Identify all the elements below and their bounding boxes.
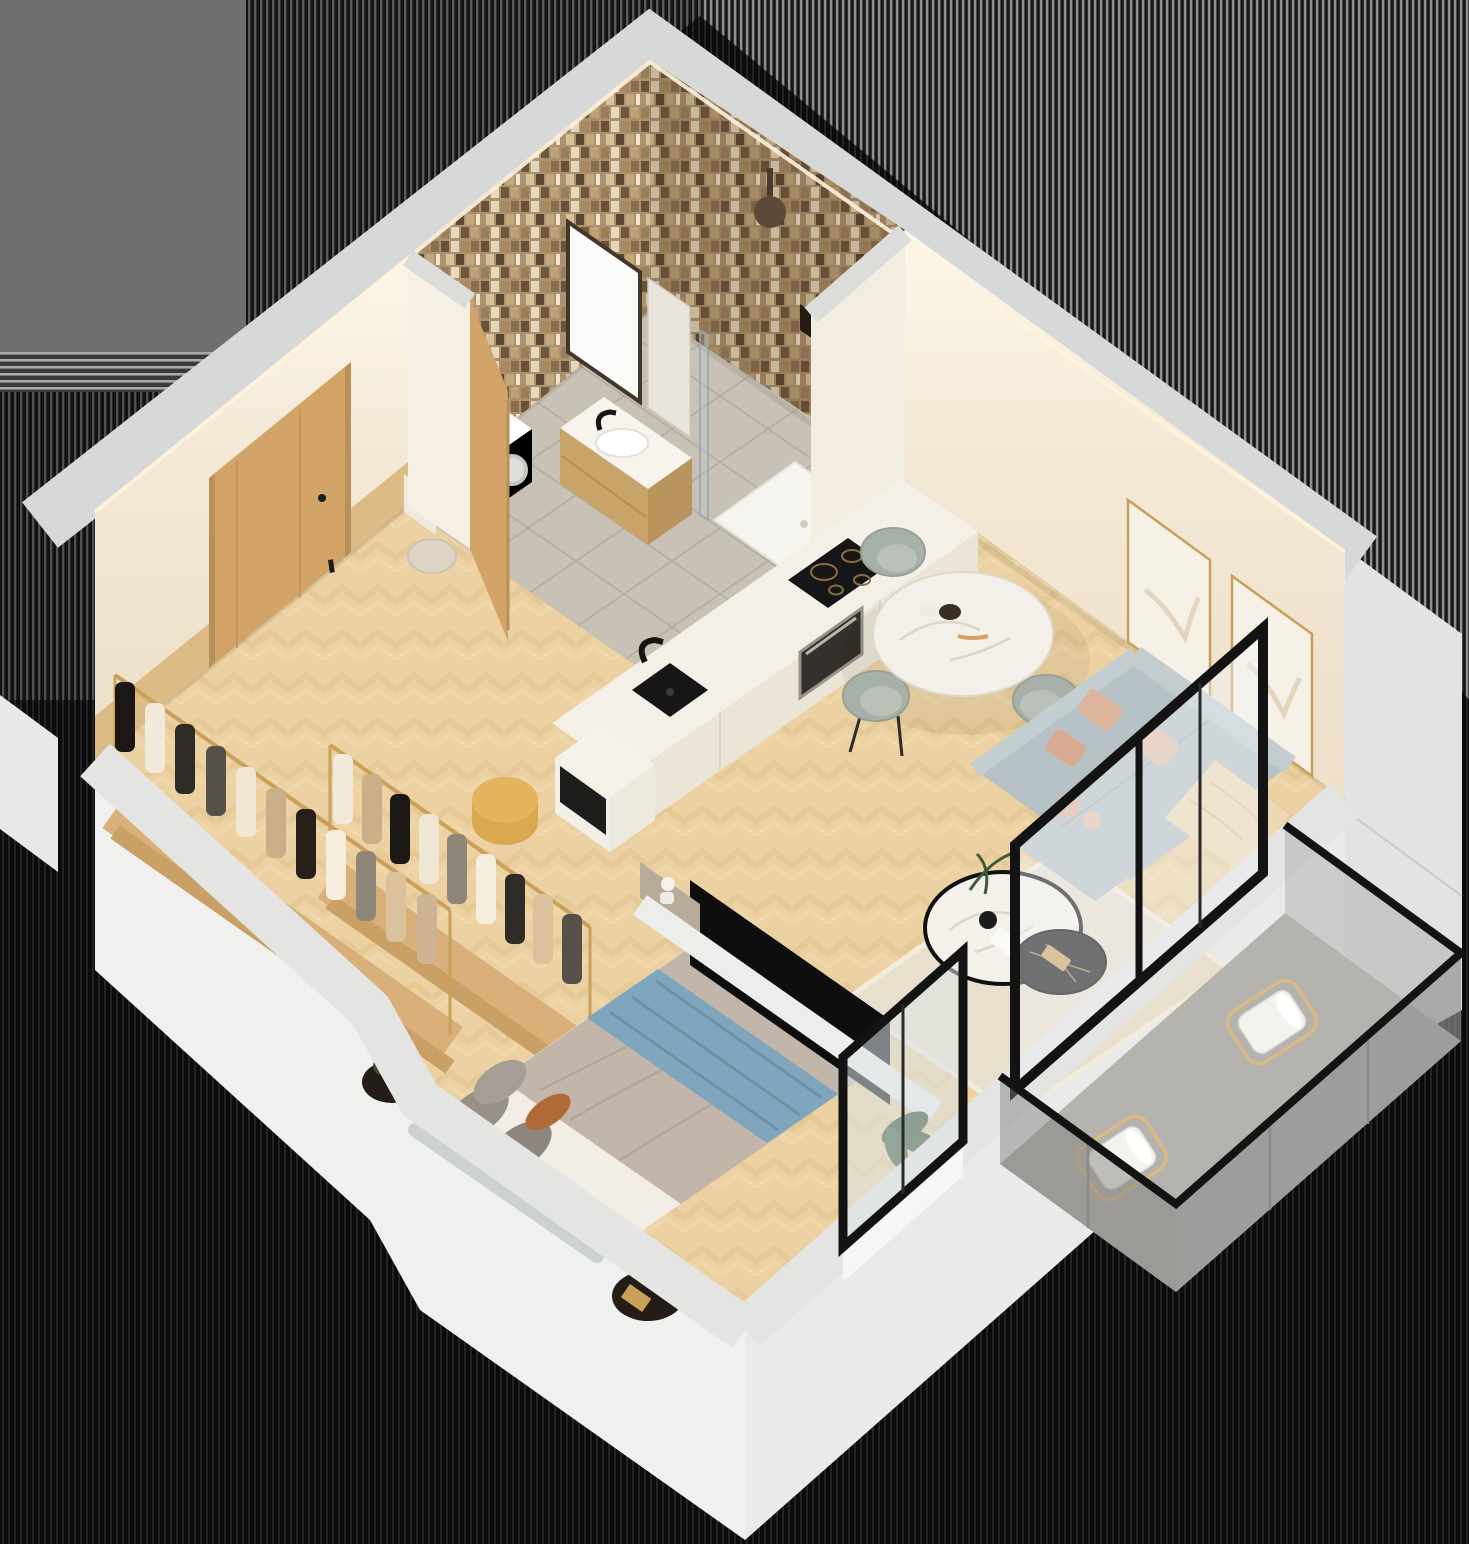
- mirror-side-panel: [648, 278, 690, 437]
- shelf-sculpture: [661, 877, 675, 891]
- shower-glass-panel-1: [700, 330, 708, 520]
- chair-seat: [860, 686, 902, 716]
- sink-drain: [666, 688, 674, 696]
- table-dish: [919, 603, 937, 617]
- pouf-top: [472, 777, 538, 823]
- backdrop-gray-slab: [0, 0, 246, 352]
- dining-table-marble-top: [873, 572, 1053, 696]
- vanity-basin: [596, 429, 648, 457]
- coffee-table-sculpture: [979, 911, 997, 929]
- shower-head: [754, 196, 786, 228]
- toilet-bowl: [408, 539, 456, 573]
- floorplan-render: [0, 0, 1469, 1544]
- chair-seat: [877, 544, 917, 572]
- door-peephole: [318, 494, 326, 502]
- table-decor-sprig: [958, 636, 988, 638]
- isometric-scene: [0, 0, 1469, 1544]
- tan-pouf: [472, 777, 538, 845]
- shower-drain: [800, 520, 808, 528]
- dining-chair-top: [861, 528, 925, 576]
- shelf-sculpture-base: [660, 892, 674, 904]
- table-vase: [939, 604, 961, 620]
